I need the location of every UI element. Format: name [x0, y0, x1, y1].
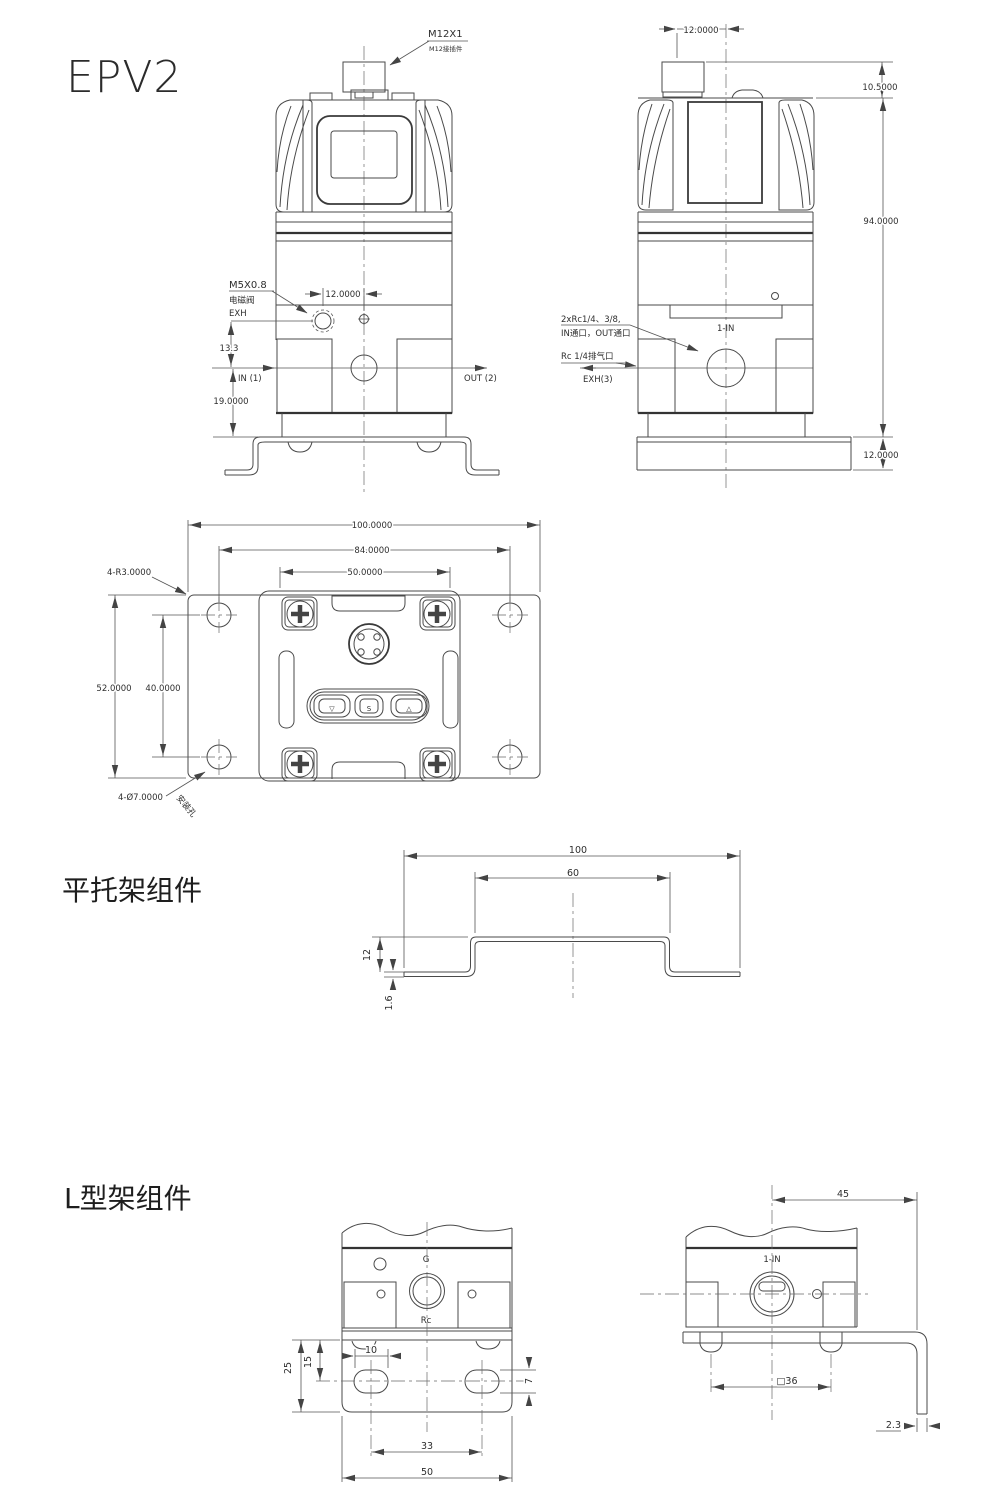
rc-thread-label: Rc: [421, 1316, 432, 1326]
dim-50-bracket: 50: [421, 1467, 433, 1478]
dim-12-top: 12.0000: [683, 26, 718, 36]
drawing-title: EPV2: [66, 52, 182, 103]
dim-52: 52.0000: [96, 684, 131, 694]
drawing-page: EPV2 M12X1 M12接插件: [0, 0, 1000, 1507]
dim-2-3: 2.3: [886, 1420, 901, 1431]
in-port-label-side: 1-IN: [717, 324, 734, 334]
flat-bracket-title: 平托架组件: [62, 874, 202, 907]
exh-label: EXH: [229, 309, 247, 319]
port-out-label: OUT (2): [464, 374, 497, 384]
up-button-glyph: △: [406, 705, 412, 713]
dim-1-6-bracket: 1.6: [384, 995, 395, 1010]
dim-13-3: 13.3: [220, 344, 239, 354]
dim-15: 15: [303, 1356, 314, 1368]
dim-25: 25: [283, 1362, 294, 1374]
g-thread-label: G: [423, 1255, 430, 1265]
dim-10-5: 10.5000: [862, 83, 897, 93]
dim-19: 19.0000: [213, 397, 248, 407]
dim-40: 40.0000: [145, 684, 180, 694]
solenoid-name-label: 电磁阀: [229, 295, 255, 306]
dim-60-bracket: 60: [567, 868, 579, 879]
dim-10: 10: [365, 1345, 377, 1356]
exhaust-note: Rc 1/4排气口: [561, 351, 613, 362]
dim-100-bracket: 100: [569, 845, 587, 856]
m12-thread-label: M12X1: [428, 29, 463, 40]
paper-background: [0, 0, 1000, 1507]
exh-port-label: EXH(3): [583, 375, 613, 385]
solenoid-thread-label: M5X0.8: [229, 280, 267, 291]
dim-84: 84.0000: [354, 546, 389, 556]
set-button-glyph: S: [367, 705, 372, 713]
m12-connector-note: M12接插件: [429, 44, 463, 53]
dim-100: 100.0000: [352, 521, 393, 531]
dim-33: 33: [421, 1441, 433, 1452]
dim-50-top: 50.0000: [347, 568, 382, 578]
port-in-label: IN (1): [238, 374, 262, 384]
dim-94: 94.0000: [863, 217, 898, 227]
dim-7: 7: [524, 1378, 535, 1384]
drawing-canvas: EPV2 M12X1 M12接插件: [0, 0, 1000, 1507]
dim-12-bottom: 12.0000: [863, 451, 898, 461]
down-button-glyph: ▽: [329, 705, 335, 713]
dim-12-bracket: 12: [362, 949, 373, 961]
dim-12-front: 12.0000: [325, 290, 360, 300]
dim-45: 45: [837, 1189, 849, 1200]
l-bracket-title: L型架组件: [64, 1182, 192, 1215]
port-note-2: IN通口，OUT通口: [561, 328, 630, 339]
dim-36: □36: [776, 1376, 797, 1387]
port-note-1: 2xRc1/4、3/8,: [561, 315, 621, 325]
hole-dia-note: 4-Ø7.0000: [118, 792, 163, 803]
corner-radius-note: 4-R3.0000: [107, 568, 151, 578]
